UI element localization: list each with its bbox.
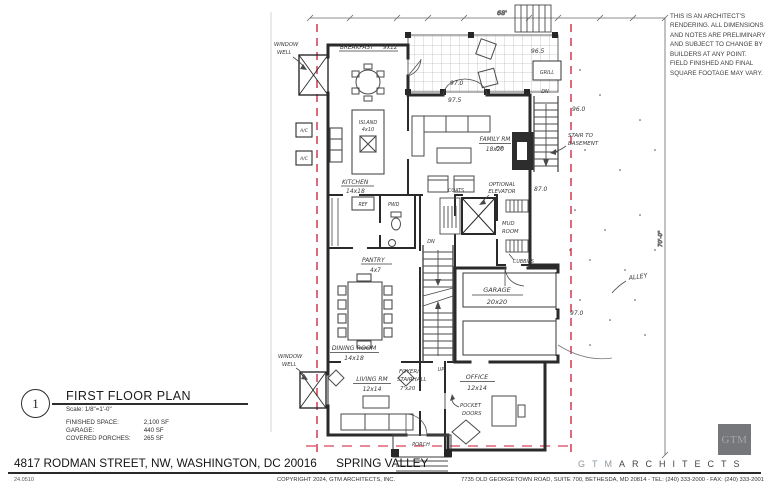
- wall-openings: [328, 57, 556, 406]
- project-address: 4817 RODMAN STREET, NW, WASHINGTON, DC 2…: [14, 456, 428, 470]
- foyer-label-2: STAIRHALL: [397, 377, 427, 383]
- living-size: 12x14: [363, 386, 382, 393]
- brand-gtm: GTM: [578, 459, 619, 469]
- firm-address: 7735 OLD GEORGETOWN ROAD, SUITE 700, BET…: [420, 477, 764, 483]
- window-wells: [299, 55, 328, 408]
- breakfast-size: 9x12: [383, 45, 398, 51]
- stat-row-garage: GARAGE: 440 SF: [66, 427, 169, 435]
- powder-room-fixtures: [389, 212, 402, 247]
- ref-label: REF: [358, 202, 367, 208]
- stat-label: FINISHED SPACE:: [66, 419, 142, 427]
- powder-label: PWD: [388, 202, 400, 208]
- stair-basement-label-2: BASEMENT: [568, 141, 599, 147]
- gtm-logo-text: GTM: [722, 434, 748, 446]
- elevation-east-mid: 87.0: [534, 186, 548, 193]
- optional-elevator-label-2: ELEVATOR: [488, 189, 516, 195]
- stat-label: GARAGE:: [66, 427, 142, 435]
- street-address: 4817 RODMAN STREET, NW, WASHINGTON, DC 2…: [14, 456, 317, 470]
- pantry-shelves: [332, 197, 374, 246]
- title-underline: [52, 403, 248, 405]
- door-swings: [406, 59, 612, 435]
- cubbies-label: CUBBIES: [513, 259, 534, 265]
- family-label: FAMILY RM: [480, 137, 511, 143]
- elevator-shaft: [462, 198, 495, 234]
- gtm-logo: GTM: [718, 424, 751, 455]
- mud-label-1: MUD: [502, 221, 515, 227]
- elevation-deck-right: 96.5: [531, 48, 545, 55]
- scale-note: Scale: 1/8"=1'-0": [66, 406, 112, 413]
- dn-right-label: DN: [541, 89, 549, 95]
- porch-label: PORCH: [412, 442, 430, 448]
- drawing-sheet: 68' 70'-0" GRILL: [0, 0, 768, 494]
- firm-brand: GTMARCHITECTS: [578, 459, 747, 469]
- sheet-title: FIRST FLOOR PLAN: [66, 389, 191, 403]
- dining-room-furniture: [338, 274, 392, 348]
- garage-size: 20x20: [487, 298, 507, 306]
- dn-center-label: DN: [427, 239, 435, 245]
- mud-label-2: ROOM: [502, 229, 519, 235]
- grill-label: GRILL: [540, 70, 555, 76]
- pocket-doors-label-2: DOORS: [462, 411, 482, 417]
- room-labels: BREAKFAST 9x12 KITCHEN 14x18 ISLAND 4x10…: [330, 45, 523, 448]
- stat-label: COVERED PORCHES:: [66, 435, 142, 443]
- stat-value: 265 SF: [144, 435, 164, 442]
- footer-rule: [8, 472, 761, 474]
- ac-label-2: A/C: [299, 156, 309, 162]
- fireplace-label: F.P.: [496, 146, 504, 152]
- foyer-label-1: FOYER/: [399, 369, 420, 375]
- pocket-doors-label-1: POCKET: [460, 403, 482, 409]
- coats-label: COATS: [448, 188, 464, 194]
- elevation-east-upper: 96.0: [572, 106, 586, 113]
- coats-closet: [440, 198, 460, 234]
- breakfast-label: BREAKFAST: [340, 45, 374, 51]
- dim-top-label: 68': [497, 9, 507, 17]
- dining-size: 14x18: [344, 355, 364, 362]
- window-well-bottom-label-2: WELL: [282, 362, 297, 368]
- foyer-size: 7'x20: [400, 386, 416, 392]
- dim-right-label: 70'-0": [658, 230, 664, 247]
- neighborhood: SPRING VALLEY: [336, 456, 428, 470]
- optional-elevator-label-1: OPTIONAL: [489, 182, 516, 188]
- window-well-top-label-1: WINDOW: [274, 42, 299, 48]
- stat-row-finished: FINISHED SPACE: 2,100 SF: [66, 419, 169, 427]
- dining-label: DINING ROOM: [332, 345, 377, 352]
- pantry-size: 4x7: [370, 268, 381, 274]
- kitchen-label: KITCHEN: [342, 179, 369, 186]
- rear-deck: GRILL: [405, 32, 561, 95]
- brand-architects: ARCHITECTS: [619, 459, 747, 469]
- office-label: OFFICE: [466, 374, 488, 381]
- detail-number-bubble: 1: [21, 389, 50, 418]
- copyright-note: COPYRIGHT 2024, GTM ARCHITECTS, INC.: [277, 477, 395, 483]
- stat-row-porches: COVERED PORCHES: 265 SF: [66, 435, 169, 443]
- elevation-east-garage: 97.0: [570, 310, 584, 317]
- project-number: 24.0510: [14, 477, 34, 483]
- kitchen-size: 14x18: [346, 188, 365, 195]
- exterior-stair-top: [515, 5, 551, 32]
- island-size: 4x10: [362, 127, 375, 133]
- alley-label: ALLEY: [627, 272, 649, 282]
- window-well-top-label-2: WELL: [277, 50, 292, 56]
- elevation-deck-lower: 97.5: [448, 97, 462, 104]
- detail-number: 1: [32, 396, 39, 412]
- elevation-deck-upper: 97.0: [450, 80, 464, 87]
- stat-value: 2,100 SF: [144, 419, 169, 426]
- ac-label-1: A/C: [299, 128, 309, 134]
- disclaimer-note: THIS IS AN ARCHITECT'S RENDERING. ALL DI…: [670, 12, 766, 78]
- stair-center: [423, 245, 453, 362]
- up-center-label: UP: [438, 367, 445, 373]
- breakfast-table: [352, 64, 384, 101]
- area-stats: FINISHED SPACE: 2,100 SF GARAGE: 440 SF …: [66, 419, 169, 443]
- office-size: 12x14: [467, 385, 487, 392]
- living-label: LIVING RM: [356, 376, 388, 383]
- window-well-bottom-label-1: WINDOW: [278, 354, 303, 360]
- stat-value: 440 SF: [144, 427, 164, 434]
- pantry-label: PANTRY: [362, 258, 385, 264]
- garage-label: GARAGE: [483, 286, 511, 294]
- stair-basement-label-1: STAIR TO: [568, 133, 594, 139]
- fireplace: [512, 132, 534, 170]
- island-label: ISLAND: [359, 120, 378, 126]
- stair-to-basement: [534, 96, 558, 172]
